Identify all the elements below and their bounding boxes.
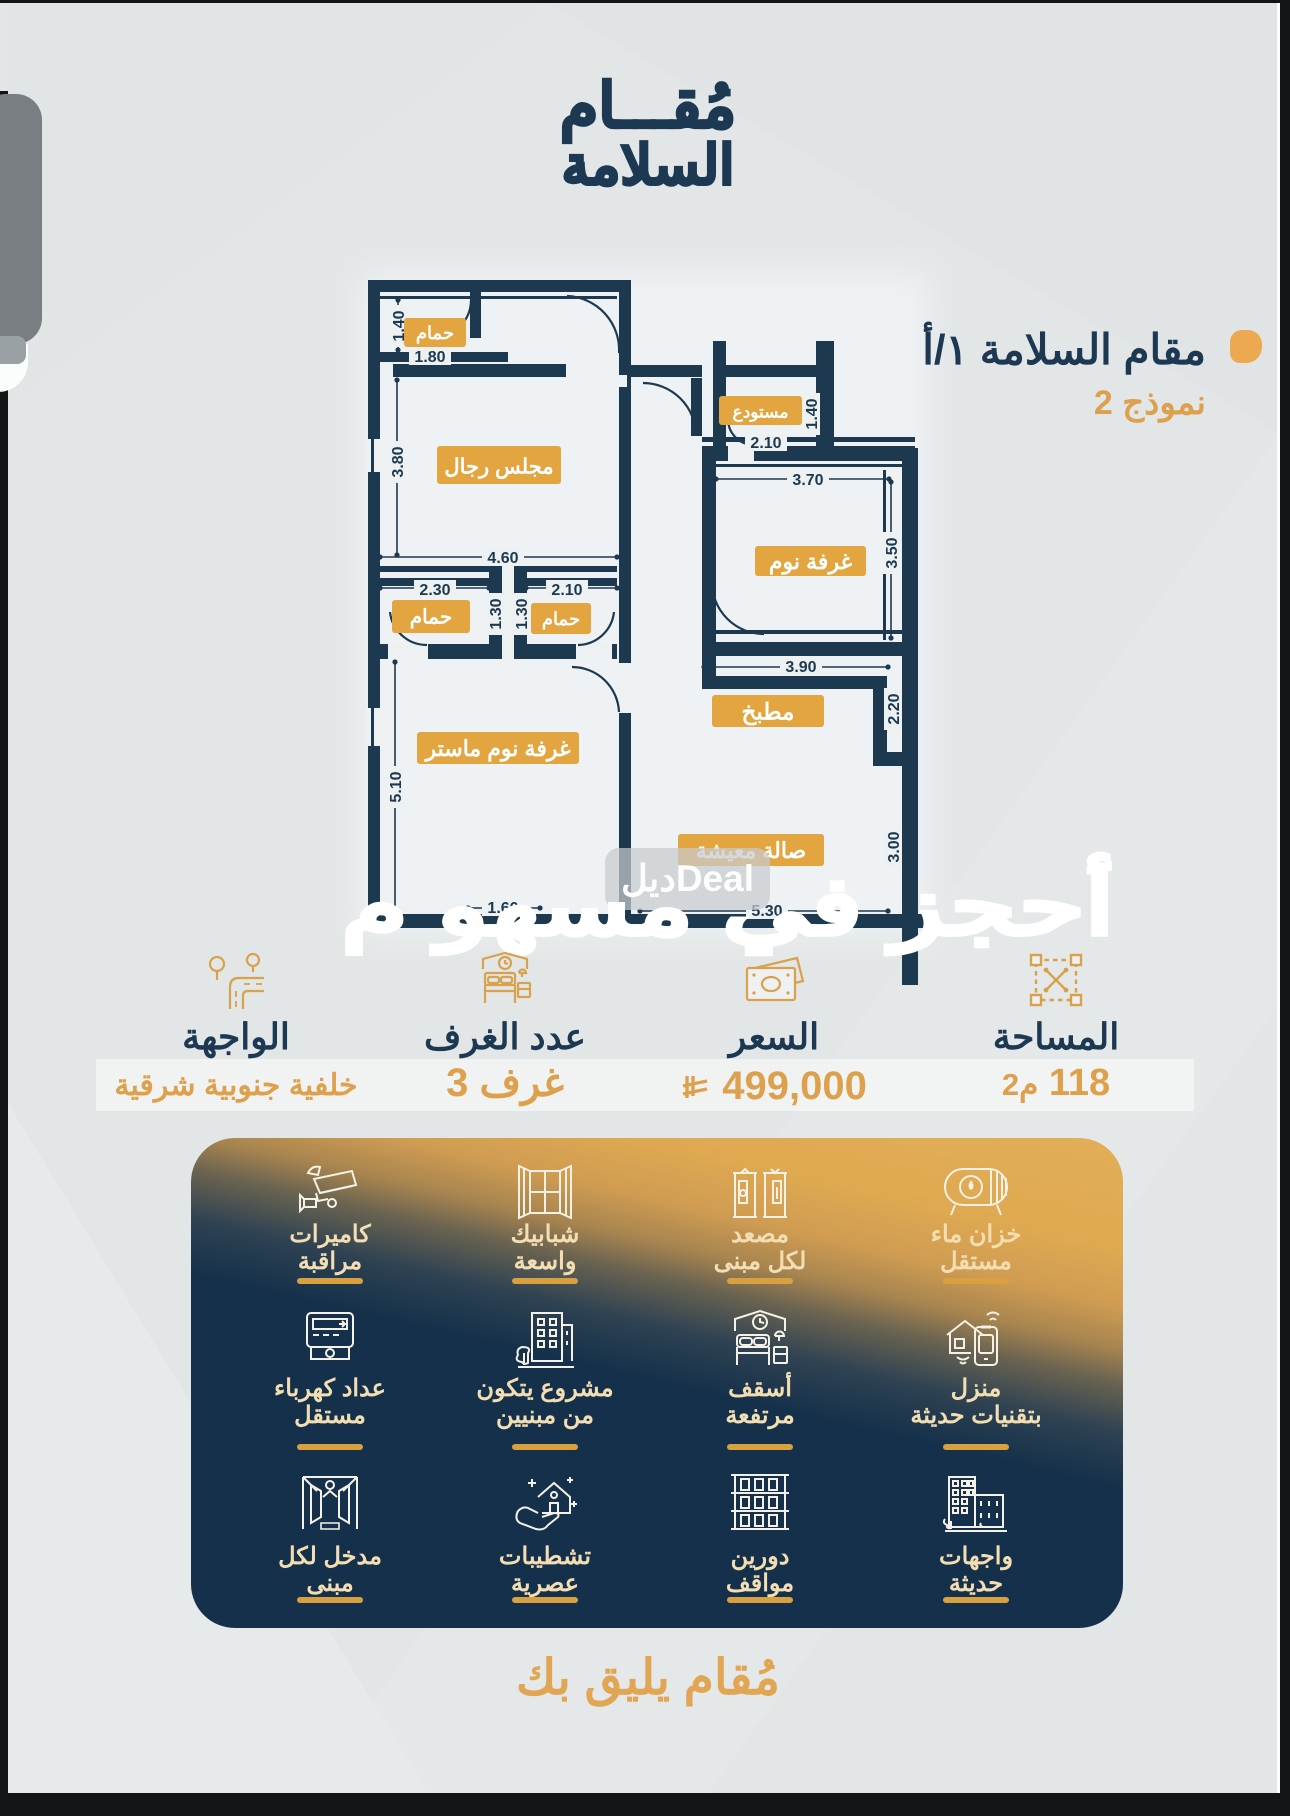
svg-text:2.10: 2.10 — [551, 582, 582, 599]
svg-text:3.00: 3.00 — [886, 831, 903, 862]
svg-text:حمام: حمام — [416, 323, 454, 344]
svg-text:1.80: 1.80 — [414, 349, 445, 366]
svg-text:غرفة نوم ماستر: غرفة نوم ماستر — [424, 736, 571, 762]
svg-text:مستودع: مستودع — [733, 402, 789, 422]
svg-text:مطبخ: مطبخ — [742, 698, 795, 726]
svg-text:1.30: 1.30 — [514, 598, 531, 629]
svg-text:1.30: 1.30 — [488, 598, 505, 629]
svg-text:حمام: حمام — [542, 609, 580, 630]
svg-text:حمام: حمام — [410, 607, 452, 630]
svg-text:2.30: 2.30 — [419, 582, 450, 599]
svg-text:2.20: 2.20 — [886, 693, 903, 724]
svg-text:1.40: 1.40 — [804, 398, 821, 429]
svg-text:3.80: 3.80 — [390, 446, 407, 477]
svg-text:4.60: 4.60 — [487, 550, 518, 567]
svg-text:3.90: 3.90 — [785, 659, 816, 676]
svg-text:5.10: 5.10 — [388, 771, 405, 802]
svg-text:3.50: 3.50 — [884, 537, 901, 568]
svg-text:مجلس رجال: مجلس رجال — [444, 456, 553, 480]
svg-text:غرفة نوم: غرفة نوم — [769, 549, 853, 575]
svg-text:3.70: 3.70 — [792, 472, 823, 489]
svg-text:2.10: 2.10 — [750, 435, 781, 452]
